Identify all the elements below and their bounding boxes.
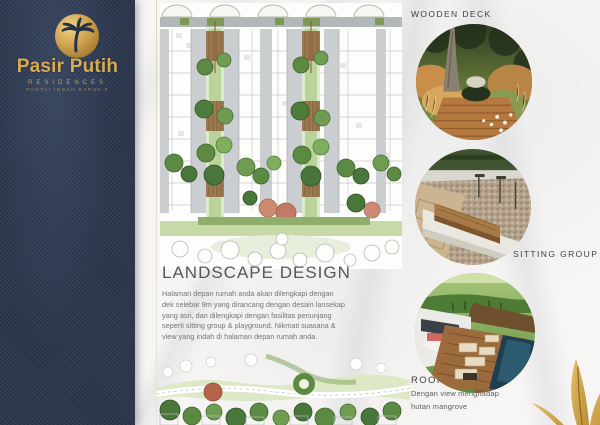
label-wooden-deck: WOODEN DECK: [411, 9, 492, 19]
brand-name: Pasir Putih: [0, 56, 135, 78]
section-heading: LANDSCAPE DESIGN: [162, 263, 402, 283]
gold-palm-leaf-icon: [504, 347, 600, 425]
photo-sitting-group: [415, 149, 531, 265]
brand-subtitle: RESIDENCES: [0, 80, 135, 86]
site-plan-illustration: [160, 3, 402, 269]
brand-tagline: PANTAI INDAH KAPUK 2: [0, 88, 135, 93]
brochure-page: Pasir Putih RESIDENCES PANTAI INDAH KAPU…: [0, 0, 600, 425]
brand-panel: Pasir Putih RESIDENCES PANTAI INDAH KAPU…: [0, 0, 135, 425]
label-sitting-group: SITTING GROUP: [513, 249, 598, 259]
photo-wooden-deck: [416, 24, 532, 140]
frontyard-plan-illustration: [156, 354, 410, 425]
section-paragraph: Halaman depan rumah anda akan dilengkapi…: [162, 289, 346, 343]
palm-tree-logo-icon: [54, 13, 100, 59]
